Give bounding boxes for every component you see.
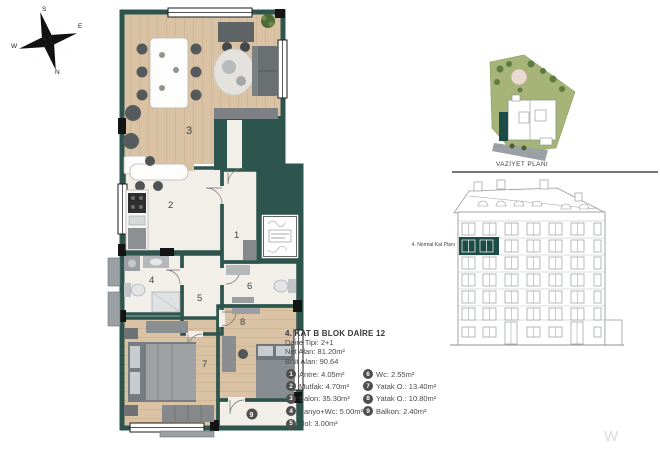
floor-plan-sheet: S E W N bbox=[0, 0, 660, 463]
room-number-yatak7: 7 bbox=[202, 359, 207, 370]
armchair bbox=[123, 133, 139, 149]
bar-stool bbox=[145, 156, 155, 166]
watermark: W bbox=[604, 428, 618, 445]
legend-item: 4 Banyo+Wc: 5.00m² bbox=[286, 406, 363, 416]
nightstand bbox=[124, 328, 138, 339]
elevator-label-box bbox=[269, 230, 291, 242]
apartment-type: Daire Tipi: 2+1 bbox=[285, 338, 385, 347]
legend-badge: 6 bbox=[363, 369, 373, 379]
bar-stool bbox=[153, 181, 163, 191]
legend-item: 5 Hol: 3.00m² bbox=[286, 419, 363, 429]
legend-badge: 5 bbox=[286, 419, 296, 429]
apartment-floor-plan: 3 2 1 4 5 6 7 8 9 bbox=[108, 8, 303, 437]
shaft-wall-mass bbox=[258, 164, 302, 213]
compass-e: E bbox=[78, 23, 83, 30]
legend-badge: 4 bbox=[286, 406, 296, 416]
legend-text: Wc: 2.55m² bbox=[376, 370, 414, 379]
bar-stool bbox=[135, 181, 145, 191]
door-corridor bbox=[227, 120, 242, 172]
apartment-gross-area: Brüt Alan: 90.64 bbox=[285, 357, 385, 366]
rug bbox=[214, 49, 254, 95]
salon-right-window bbox=[278, 40, 287, 98]
compass-rose-icon: S E W N bbox=[11, 4, 85, 77]
legend-item: 8 Yatak O.: 10.80m² bbox=[363, 394, 436, 404]
legend-item: 2 Mutfak: 4.70m² bbox=[286, 381, 363, 391]
bar-counter bbox=[130, 164, 188, 180]
toilet-tank bbox=[124, 283, 131, 297]
legend-item: 9 Balkon: 2.40m² bbox=[363, 406, 436, 416]
apartment-info: 4. KAT B BLOK DAİRE 12 Daire Tipi: 2+1 N… bbox=[285, 329, 385, 366]
toilet bbox=[131, 284, 145, 296]
legend-badge: 1 bbox=[286, 369, 296, 379]
legend-text: Salon: 35.30m² bbox=[299, 394, 350, 403]
site-big-tree bbox=[511, 69, 527, 85]
legend-badge: 8 bbox=[363, 394, 373, 404]
room-number-mutfak: 2 bbox=[168, 200, 173, 211]
room-legend: 1 Antre: 4.05m² 2 Mutfak: 4.70m² 3 Salon… bbox=[286, 369, 436, 431]
wc-toilet-tank bbox=[288, 279, 296, 293]
site-highlight-block bbox=[499, 112, 508, 141]
legend-item: 6 Wc: 2.55m² bbox=[363, 369, 436, 379]
legend-column-2: 6 Wc: 2.55m² 7 Yatak O.: 13.40m² 8 Yatak… bbox=[363, 369, 436, 431]
wc-sink bbox=[226, 265, 250, 275]
legend-text: Yatak O.: 10.80m² bbox=[376, 394, 436, 403]
legend-item: 7 Yatak O.: 13.40m² bbox=[363, 381, 436, 391]
legend-text: Mutfak: 4.70m² bbox=[299, 382, 349, 391]
sink bbox=[129, 216, 145, 225]
antre-furniture bbox=[243, 240, 256, 260]
apartment-net-area: Net Alan: 81.20m² bbox=[285, 347, 385, 356]
desk8 bbox=[222, 336, 236, 372]
radiator8 bbox=[232, 308, 260, 314]
compass-s: S bbox=[42, 6, 47, 13]
legend-column-1: 1 Antre: 4.05m² 2 Mutfak: 4.70m² 3 Salon… bbox=[286, 369, 363, 431]
room-number-wc: 6 bbox=[247, 281, 252, 292]
room-number-salon: 3 bbox=[186, 125, 192, 137]
core-wall-mass bbox=[214, 116, 285, 170]
legend-text: Antre: 4.05m² bbox=[299, 370, 344, 379]
armchair bbox=[125, 105, 141, 121]
legend-badge: 3 bbox=[286, 394, 296, 404]
legend-item: 3 Salon: 35.30m² bbox=[286, 394, 363, 404]
nightstand bbox=[124, 405, 138, 416]
elevation-annex bbox=[605, 320, 622, 345]
shoe-cabinet bbox=[243, 240, 256, 260]
desk8-chair bbox=[238, 349, 248, 359]
room-number-yatak8: 8 bbox=[240, 317, 245, 328]
fridge bbox=[128, 228, 146, 249]
site-buildings bbox=[508, 95, 556, 145]
building-elevation: 4. Normal Kat Planı bbox=[412, 180, 624, 345]
salon-top-window bbox=[168, 8, 252, 17]
dining-table bbox=[150, 38, 188, 108]
room-number-hol: 5 bbox=[197, 293, 202, 304]
wc-radiator bbox=[232, 297, 254, 303]
room-number-antre: 1 bbox=[234, 230, 239, 241]
coffee-table bbox=[222, 60, 236, 74]
stove bbox=[128, 193, 146, 213]
site-plan: VAZİYET PLANI bbox=[452, 55, 658, 172]
compass-w: W bbox=[11, 43, 18, 50]
pouf bbox=[236, 76, 246, 86]
legend-text: Yatak O.: 13.40m² bbox=[376, 382, 436, 391]
compass-n: N bbox=[55, 69, 60, 76]
elevator bbox=[260, 213, 300, 260]
legend-badge: 7 bbox=[363, 381, 373, 391]
desk bbox=[218, 22, 254, 42]
site-plan-label: VAZİYET PLANI bbox=[496, 159, 548, 168]
yatak7-bottom-window bbox=[130, 423, 204, 432]
dresser7 bbox=[146, 321, 188, 333]
elevation-label: 4. Normal Kat Planı bbox=[412, 242, 455, 248]
legend-item: 1 Antre: 4.05m² bbox=[286, 369, 363, 379]
legend-text: Banyo+Wc: 5.00m² bbox=[299, 407, 363, 416]
legend-text: Hol: 3.00m² bbox=[299, 419, 338, 428]
legend-text: Balkon: 2.40m² bbox=[376, 407, 426, 416]
room-number-balkon: 9 bbox=[250, 412, 254, 419]
legend-badge: 9 bbox=[363, 406, 373, 416]
wc-toilet bbox=[274, 280, 288, 292]
apartment-title: 4. KAT B BLOK DAİRE 12 bbox=[285, 329, 385, 338]
room-number-banyo: 4 bbox=[149, 275, 154, 286]
legend-badge: 2 bbox=[286, 381, 296, 391]
tv-console bbox=[214, 108, 278, 119]
